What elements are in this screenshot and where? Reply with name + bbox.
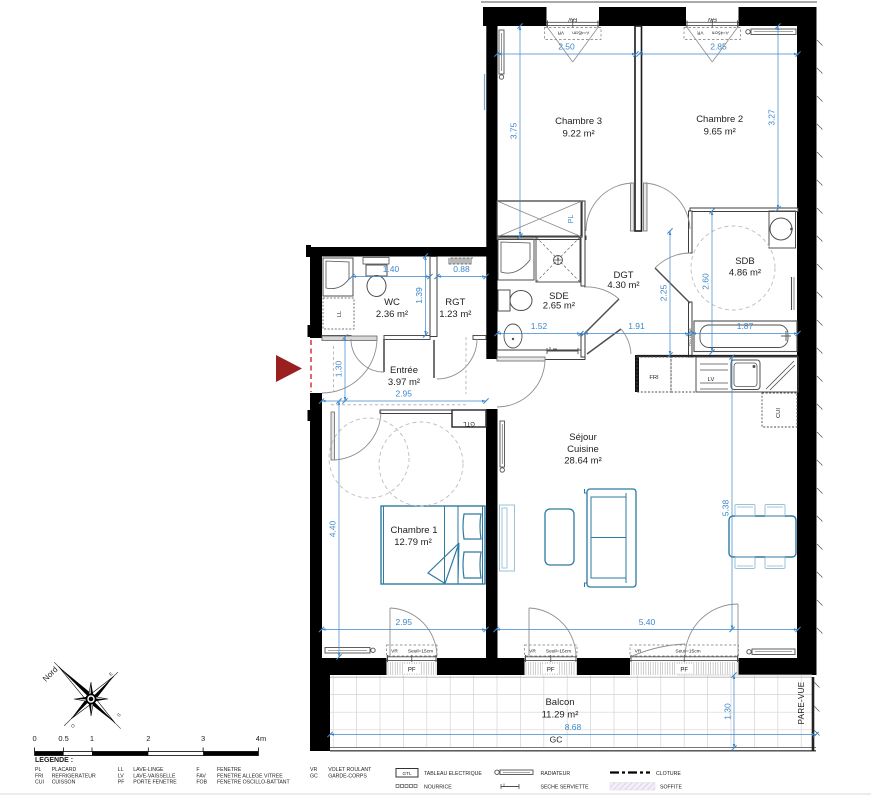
svg-text:A=45cm: A=45cm <box>712 31 729 36</box>
svg-text:Seuil=15cm: Seuil=15cm <box>408 649 433 655</box>
svg-text:REFRIGERATEUR: REFRIGERATEUR <box>52 773 96 779</box>
svg-text:FENETRE ALLEGE VITREE: FENETRE ALLEGE VITREE <box>217 773 283 779</box>
svg-text:Cuisine: Cuisine <box>567 444 599 455</box>
svg-text:Chambre 3: Chambre 3 <box>555 116 602 127</box>
svg-text:FENETRE OSCILLO-BATTANT: FENETRE OSCILLO-BATTANT <box>217 780 291 786</box>
svg-text:PF: PF <box>680 668 688 674</box>
svg-text:A=45cm: A=45cm <box>572 31 589 36</box>
svg-text:2.95: 2.95 <box>395 617 412 627</box>
svg-text:FAV: FAV <box>196 773 206 779</box>
svg-text:1.87: 1.87 <box>737 321 754 331</box>
svg-text:PARE-VUE: PARE-VUE <box>797 682 806 725</box>
svg-text:FOB: FOB <box>196 780 207 786</box>
svg-text:5.38: 5.38 <box>721 499 731 516</box>
svg-text:LAVE-VAISSELLE: LAVE-VAISSELLE <box>133 773 176 779</box>
svg-text:GARDE-CORPS: GARDE-CORPS <box>328 773 367 779</box>
svg-text:PF: PF <box>118 780 125 786</box>
svg-text:9.65 m²: 9.65 m² <box>704 127 736 138</box>
svg-text:VR: VR <box>529 649 536 655</box>
svg-text:LL: LL <box>337 311 343 317</box>
svg-text:LAVE-LINGE: LAVE-LINGE <box>133 767 164 773</box>
svg-text:WC: WC <box>384 297 400 308</box>
svg-text:8.68: 8.68 <box>565 722 582 732</box>
svg-text:GC: GC <box>550 735 563 745</box>
svg-text:2.65 m²: 2.65 m² <box>543 301 575 312</box>
svg-text:4.86 m²: 4.86 m² <box>729 268 761 279</box>
svg-text:F: F <box>196 767 199 773</box>
svg-text:28.64 m²: 28.64 m² <box>564 456 602 467</box>
svg-text:Seuil=15cm: Seuil=15cm <box>546 649 571 655</box>
svg-text:1.40: 1.40 <box>383 264 400 274</box>
svg-text:FRI: FRI <box>35 773 43 779</box>
svg-text:2.25: 2.25 <box>659 284 669 301</box>
svg-text:Seuil=15cm: Seuil=15cm <box>675 649 700 655</box>
svg-text:LV: LV <box>118 773 124 779</box>
svg-text:Balcon: Balcon <box>545 697 574 708</box>
svg-text:NOURRICE: NOURRICE <box>424 785 452 791</box>
svg-text:VR: VR <box>557 31 564 36</box>
svg-text:5.40: 5.40 <box>639 617 656 627</box>
svg-text:PL: PL <box>35 767 41 773</box>
svg-text:PLACARD: PLACARD <box>52 767 77 773</box>
svg-text:VR: VR <box>696 31 703 36</box>
svg-text:3: 3 <box>201 734 205 743</box>
svg-text:9.22 m²: 9.22 m² <box>562 129 594 140</box>
svg-text:PORTE FENETRE: PORTE FENETRE <box>133 780 177 786</box>
svg-text:3.75: 3.75 <box>509 122 519 139</box>
svg-text:PF: PF <box>547 668 555 674</box>
svg-text:PF: PF <box>408 668 416 674</box>
svg-text:0.5: 0.5 <box>58 734 68 743</box>
svg-text:VR: VR <box>310 767 317 773</box>
svg-text:1.39: 1.39 <box>414 287 424 304</box>
svg-text:1.91: 1.91 <box>628 321 645 331</box>
svg-text:4m: 4m <box>256 734 266 743</box>
svg-text:PL: PL <box>568 215 575 224</box>
svg-text:2.50: 2.50 <box>558 42 575 52</box>
svg-text:4.30 m²: 4.30 m² <box>607 280 639 291</box>
svg-text:2.95: 2.95 <box>395 389 412 399</box>
svg-text:FENETRE: FENETRE <box>217 767 242 773</box>
svg-text:11.29 m²: 11.29 m² <box>542 710 579 721</box>
svg-text:SECHE SERVIETTE: SECHE SERVIETTE <box>541 785 590 791</box>
svg-text:CUI: CUI <box>776 408 782 418</box>
svg-text:SOFFITE: SOFFITE <box>660 785 682 791</box>
svg-text:RADIATEUR: RADIATEUR <box>541 771 571 777</box>
svg-text:12.79 m²: 12.79 m² <box>394 537 432 548</box>
svg-text:1.30: 1.30 <box>334 360 344 377</box>
svg-text:1.52: 1.52 <box>531 321 548 331</box>
svg-text:GTL: GTL <box>463 420 475 426</box>
svg-text:VR: VR <box>391 649 398 655</box>
svg-text:PAS LISSE: PAS LISSE <box>688 327 692 346</box>
svg-text:0: 0 <box>33 734 37 743</box>
svg-text:Chambre 1: Chambre 1 <box>391 525 438 536</box>
svg-text:FRI: FRI <box>649 375 659 381</box>
svg-text:3.27: 3.27 <box>767 109 777 126</box>
svg-text:4.40: 4.40 <box>328 520 338 537</box>
svg-text:2.60: 2.60 <box>701 273 711 290</box>
svg-text:LV: LV <box>708 377 715 383</box>
svg-text:TABLEAU ELECTRIQUE: TABLEAU ELECTRIQUE <box>424 771 482 777</box>
svg-text:Chambre 2: Chambre 2 <box>696 114 743 125</box>
svg-text:0.88: 0.88 <box>453 264 470 274</box>
svg-text:1.30: 1.30 <box>723 703 733 720</box>
svg-text:Entrée: Entrée <box>390 365 418 376</box>
svg-text:GC: GC <box>310 773 318 779</box>
svg-text:CUI: CUI <box>35 780 44 786</box>
svg-text:FAV: FAV <box>707 16 717 22</box>
svg-text:SDB: SDB <box>735 256 755 267</box>
svg-text:1: 1 <box>90 734 94 743</box>
svg-text:2.85: 2.85 <box>710 42 727 52</box>
svg-text:VOLET ROULANT: VOLET ROULANT <box>328 767 372 773</box>
svg-text:CLOTURE: CLOTURE <box>656 771 681 777</box>
svg-text:LL: LL <box>118 767 124 773</box>
svg-text:2: 2 <box>146 734 150 743</box>
svg-text:RGT: RGT <box>445 297 465 308</box>
svg-text:Séjour: Séjour <box>569 432 596 443</box>
svg-text:FAV: FAV <box>568 16 578 22</box>
svg-text:GTL: GTL <box>403 771 412 776</box>
svg-text:CUISSON: CUISSON <box>52 780 76 786</box>
svg-text:3.97 m²: 3.97 m² <box>388 377 420 388</box>
svg-text:2.36 m²: 2.36 m² <box>376 309 408 320</box>
svg-text:1.23 m²: 1.23 m² <box>439 309 471 320</box>
svg-text:LEGENDE :: LEGENDE : <box>35 757 73 764</box>
